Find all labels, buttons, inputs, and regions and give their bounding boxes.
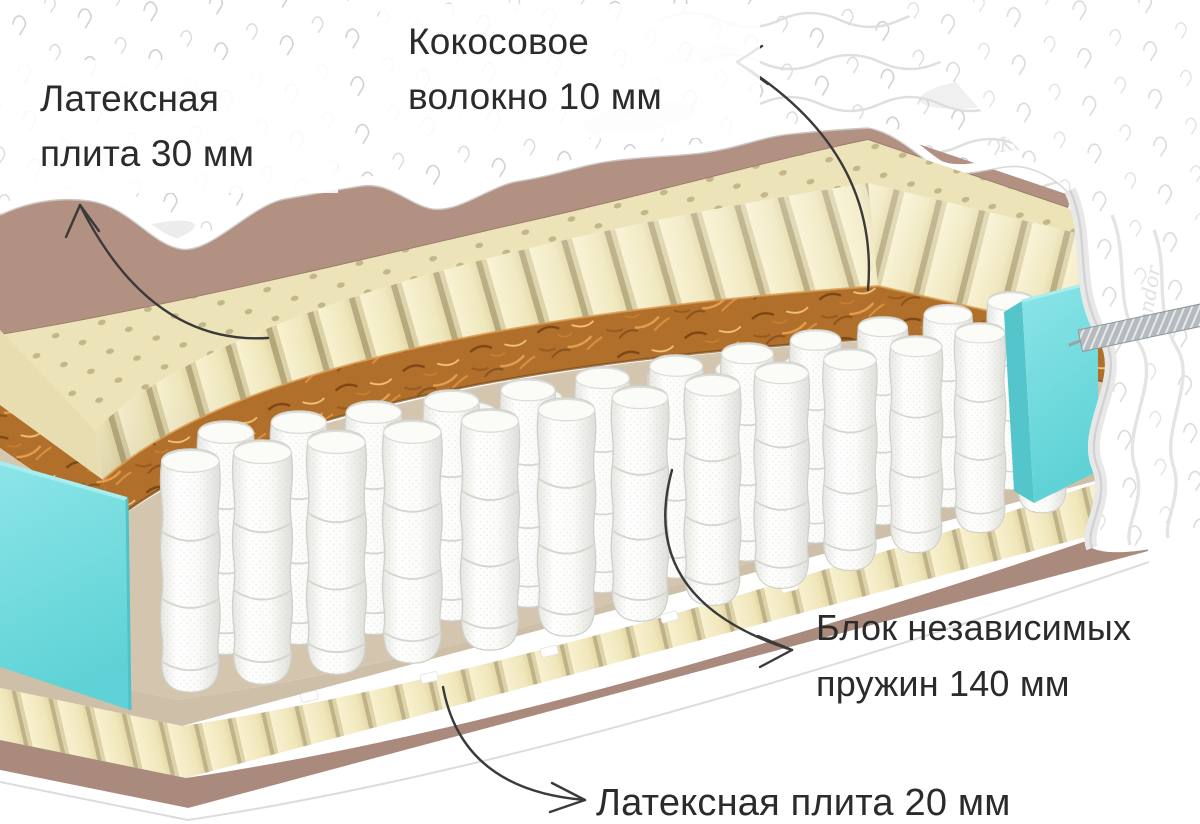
label-line: волокно 10 мм — [408, 69, 760, 124]
label-latex-plate-30mm: Латексная плита 30 мм — [14, 60, 338, 193]
foam-rail-left — [0, 463, 130, 710]
foam-rail-right — [1004, 281, 1098, 503]
label-line: пружин 140 мм — [816, 656, 1131, 712]
label-latex-plate-20mm: Латексная плита 20 мм — [596, 776, 1011, 824]
label-line: Кокосовое — [408, 14, 760, 69]
label-line: Блок независимых — [816, 600, 1131, 656]
label-coconut-fiber-10mm: Кокосовое волокно 10 мм — [380, 4, 760, 138]
label-line: Латексная — [40, 71, 338, 126]
label-line: плита 30 мм — [40, 126, 338, 181]
label-spring-block-140mm: Блок независимых пружин 140 мм — [816, 600, 1131, 712]
mattress-diagram: Kondor Kondor — [0, 0, 1200, 824]
label-line: Латексная плита 20 мм — [596, 776, 1011, 824]
